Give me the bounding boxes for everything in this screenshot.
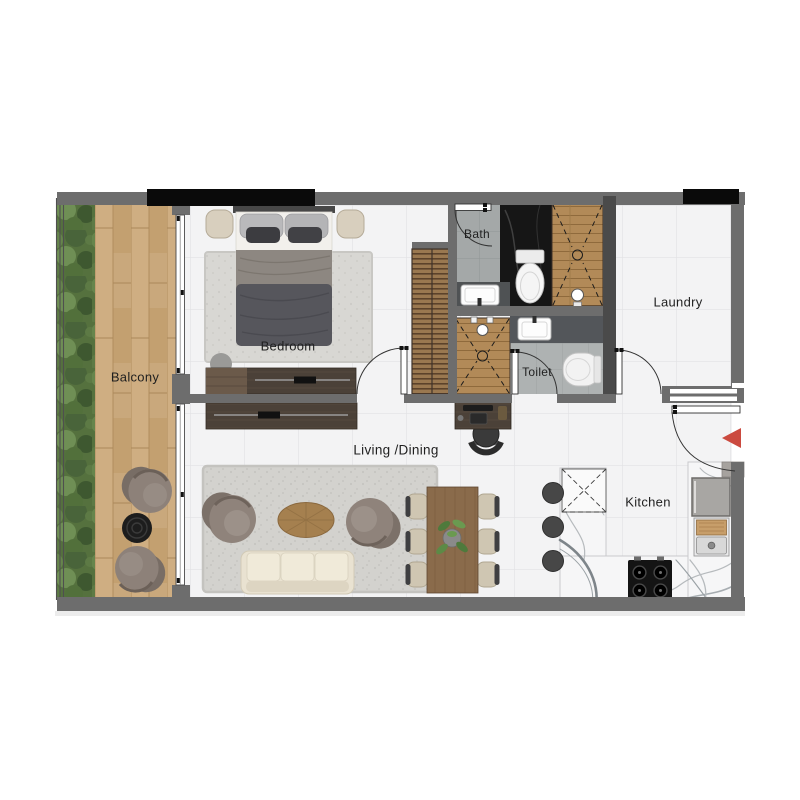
toilet-fixture [563,353,601,386]
bar-stools [543,483,564,572]
shower-head-icon [572,289,584,301]
faucet-icon [478,298,482,307]
balcony-table [122,513,152,543]
fridge [692,478,730,516]
room-label-laundry: Laundry [653,295,702,310]
sliding-window [176,215,185,374]
toilet-sink [510,314,603,343]
bath-toilet [516,250,544,303]
coffee-table [278,503,334,538]
sliding-window [176,404,185,585]
room-label-living-dining: Living /Dining [353,443,438,458]
room-label-bath: Bath [464,227,490,241]
bath-room [452,204,603,309]
kitchen-sink [694,518,729,556]
floor-plan: Balcony Bedroom Living /Dining Bath Toil… [0,0,800,800]
bath-shower [552,204,603,309]
sofa [241,551,354,594]
wardrobe [412,242,452,394]
bath-sink [452,282,510,307]
room-label-bedroom: Bedroom [261,339,316,354]
desk [455,402,511,429]
bed [233,206,335,346]
room-label-balcony: Balcony [111,370,159,385]
toilet-shower [455,317,510,394]
floor-plan-canvas [0,0,800,800]
stove [628,557,672,603]
room-label-toilet: Toilet [522,365,552,379]
appliance-space [562,469,606,512]
tv-console [206,403,357,429]
room-label-kitchen: Kitchen [625,495,670,510]
shower-head-icon [477,325,488,336]
dresser [206,368,356,394]
